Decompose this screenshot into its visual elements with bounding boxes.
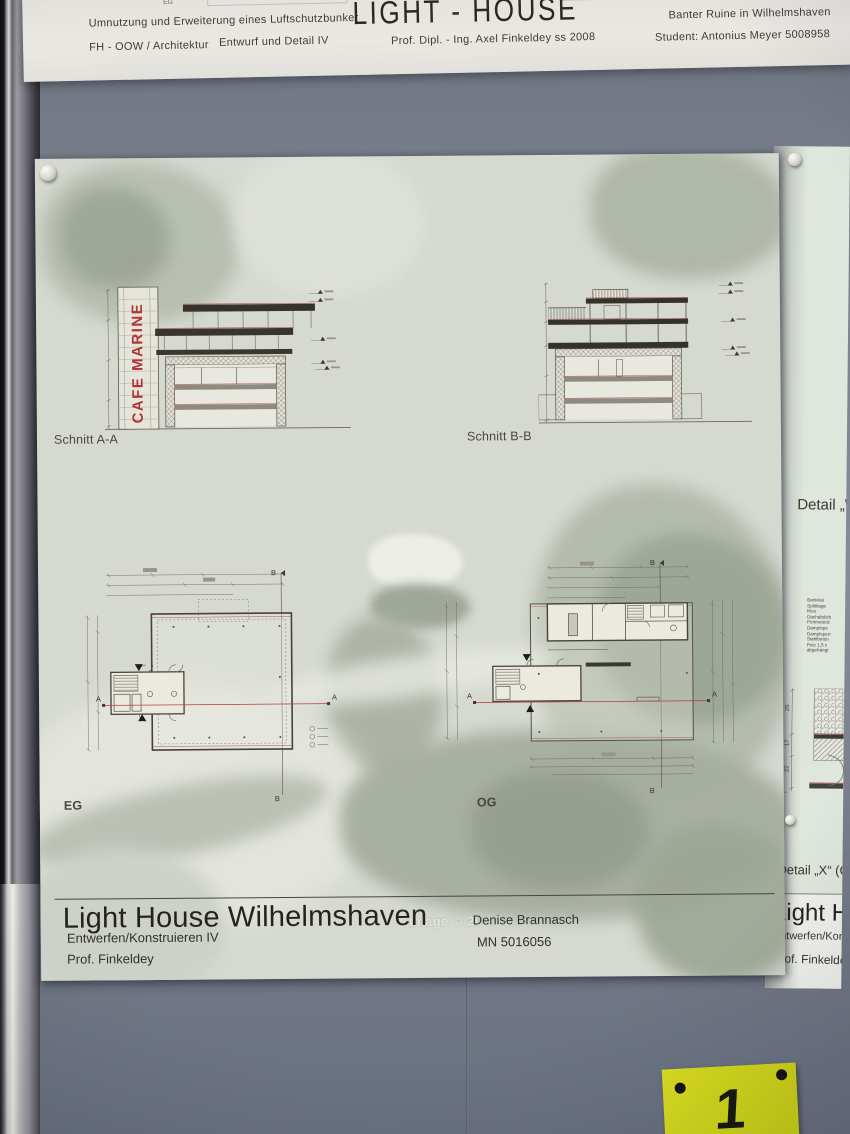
section-bb-label: Schnitt B-B	[467, 429, 532, 444]
floor-plan-og-drawing: B B	[440, 552, 744, 809]
plan-legend	[310, 726, 329, 747]
svg-text:B: B	[271, 568, 276, 577]
svg-text:A: A	[332, 693, 337, 702]
course-name: Entwurf und Detail IV	[219, 35, 329, 49]
elevation-markers	[309, 290, 340, 370]
pushpin	[785, 815, 795, 825]
cafe-marine-sign: CAFE MARINE	[129, 303, 147, 424]
svg-text:A: A	[467, 692, 472, 701]
section-bb-drawing	[538, 275, 754, 432]
project-subtitle: Umnutzung und Erweiterung eines Luftschu…	[89, 12, 359, 30]
dimension-line	[544, 283, 549, 423]
svg-text:A: A	[96, 694, 101, 703]
aluminium-frame-left-bottom	[0, 884, 40, 1134]
section-aa-drawing: CAFE MARINE	[98, 277, 354, 444]
svg-text:A: A	[712, 690, 717, 699]
yellow-number-tag: 1	[662, 1063, 801, 1134]
tag-number: 1	[662, 1072, 799, 1134]
floor-plan-eg-drawing: B B	[83, 559, 347, 811]
professor-name: Prof. Dipl. - Ing. Axel Finkeldey ss 200…	[391, 31, 595, 47]
entrance-structure	[111, 664, 184, 722]
student-id: MN 5016056	[477, 934, 552, 950]
poster-professor: Prof. Finkeldey	[67, 951, 154, 967]
section-aa-label: Schnitt A-A	[54, 432, 118, 447]
project-title: LIGHT - HOUSE	[352, 0, 578, 32]
bunker-section	[538, 348, 702, 420]
roof-slabs	[155, 303, 315, 355]
dimension-line	[106, 289, 111, 429]
main-poster-sheet: CAFE MARINE	[35, 153, 785, 981]
bunker-section	[165, 356, 286, 427]
plan-remnant-outline	[560, 0, 837, 1]
pushpin	[788, 153, 801, 166]
upper-structure	[548, 289, 688, 349]
floor-label-eg: EG	[163, 0, 173, 6]
plan-remnant-outline	[207, 0, 347, 6]
school-name: FH - OOW / Architektur	[89, 39, 209, 54]
svg-text:B: B	[650, 786, 655, 795]
student-line: Student: Antonius Meyer 5008958	[655, 28, 830, 44]
student-name: Denise Brannasch	[473, 912, 579, 928]
wall-panel-seam	[466, 976, 468, 1134]
elevation-markers	[719, 281, 750, 355]
plan-eg-label: EG	[64, 799, 83, 813]
site-name: Banter Ruine in Wilhelmshaven	[668, 6, 830, 21]
pushpin	[40, 165, 56, 181]
photo-of-pinboard: Detail „W Bankirai Splittlage Kies Dacha…	[0, 0, 850, 1134]
signal-tower: CAFE MARINE	[118, 287, 159, 429]
svg-text:B: B	[275, 794, 280, 803]
poster-course: Entwerfen/Konstruieren IV	[67, 930, 219, 946]
svg-text:B: B	[650, 558, 655, 567]
plan-og-label: OG	[477, 795, 497, 809]
